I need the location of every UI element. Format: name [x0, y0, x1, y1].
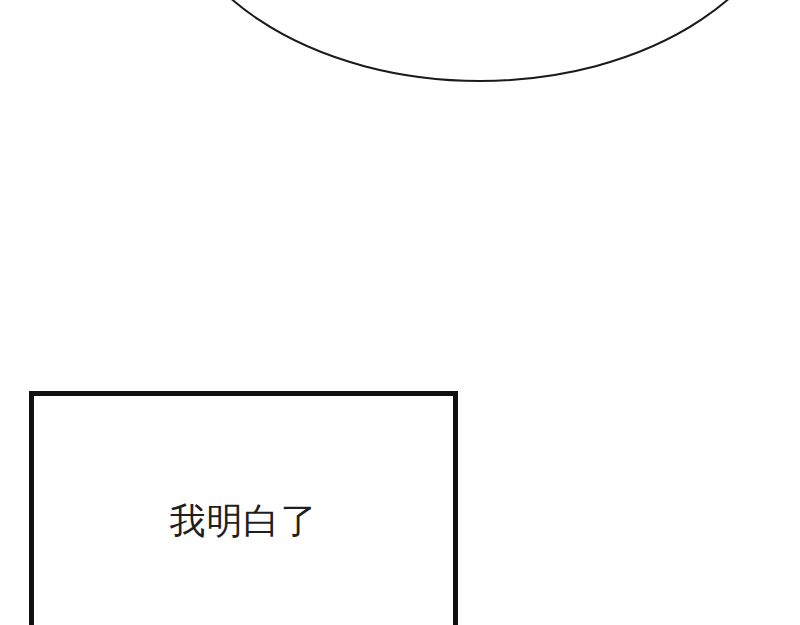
comic-panel: 我明白了	[0, 0, 800, 625]
speech-bubble-ellipse	[166, 0, 794, 81]
dialogue-box: 我明白了	[29, 391, 458, 625]
dialogue-text: 我明白了	[34, 503, 453, 539]
